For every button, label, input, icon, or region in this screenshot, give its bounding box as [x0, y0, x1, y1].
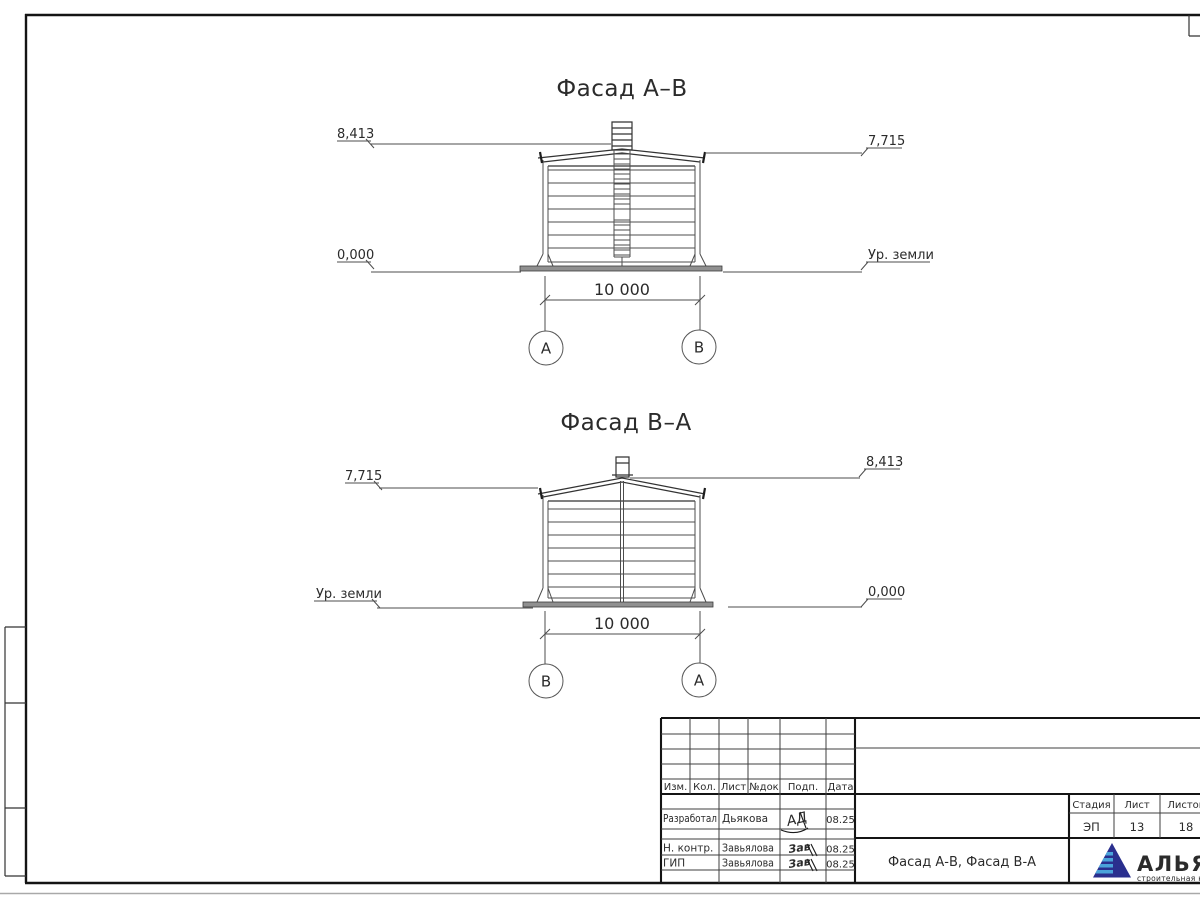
stage-value: ЭП: [1083, 820, 1100, 834]
sheets-label: Листов: [1167, 800, 1200, 811]
company-logo: АЛЬЯНС строительная компания: [1092, 843, 1200, 883]
drawing-sheet: Фасад А–В 8,413 7,715 0,000 Ур. земли 10…: [0, 0, 1200, 900]
axis-letter-right: В: [694, 339, 704, 357]
col-data: Дата: [828, 782, 854, 793]
corner-stamp-box: [1189, 15, 1200, 36]
roof-outline: [538, 478, 705, 501]
logo-subtitle: строительная компания: [1137, 874, 1200, 883]
row-name: Завьялова: [722, 843, 774, 855]
center-column: [621, 481, 624, 602]
logo-name: АЛЬЯНС: [1137, 852, 1200, 876]
logo-stripe: [1092, 858, 1113, 862]
axis-letter-right: А: [694, 672, 705, 690]
logo-stripe: [1092, 852, 1113, 856]
siding-lines: [548, 509, 695, 598]
ladder-cage: [612, 122, 632, 150]
facade-title: Фасад А–В: [556, 76, 687, 102]
axis-letter-left: А: [541, 340, 552, 358]
col-list: Лист: [721, 782, 747, 793]
dimension-value: 10 000: [594, 280, 650, 299]
row-role: Н. контр.: [663, 843, 713, 855]
ground-level-leader: [723, 262, 930, 272]
signature: Зав: [788, 840, 812, 856]
row-role: ГИП: [663, 858, 685, 870]
row-role: Разработал: [663, 813, 717, 825]
elevation-value-bottom-right: 0,000: [868, 585, 905, 600]
elevation-leader-bottom-left: [337, 260, 521, 272]
elevation-leader-top-right: [705, 148, 902, 156]
col-ndok: №док: [749, 782, 778, 793]
row-date: 08.25: [826, 845, 855, 856]
stage-label: Стадия: [1072, 800, 1110, 811]
dimension-value: 10 000: [594, 614, 650, 633]
logo-stripe: [1092, 870, 1113, 874]
page-frame: [0, 14, 1200, 894]
left-margin-boxes: [5, 627, 26, 876]
sheet-number: 13: [1130, 820, 1145, 834]
row-name: Завьялова: [722, 858, 774, 870]
row-name: Дьякова: [722, 813, 768, 825]
roof-outline: [538, 149, 705, 166]
ladder-rails: [614, 150, 630, 266]
elevation-value-top-right: 7,715: [868, 134, 905, 149]
col-kol: Кол.: [693, 782, 716, 793]
col-izm: Изм.: [664, 782, 688, 793]
axis-letter-left: В: [541, 673, 551, 691]
sheet-label: Лист: [1124, 800, 1150, 811]
document-title: Фасад А-В, Фасад В-А: [888, 855, 1036, 870]
elevation-value-top-left: 7,715: [345, 469, 382, 484]
elevation-leader-bottom-right: [728, 599, 902, 607]
facade-a-b: Фасад А–В 8,413 7,715 0,000 Ур. земли 10…: [337, 76, 934, 365]
facade-title: Фасад В–А: [560, 410, 691, 436]
ground-level-label: Ур. земли: [868, 248, 934, 263]
facade-b-a: Фасад В–А 7,715 8,413 Ур. земли 0,000 10…: [314, 410, 905, 698]
row-date: 08.25: [826, 815, 855, 826]
elevation-leader-top-left: [337, 139, 611, 148]
sheet-canvas: Фасад А–В 8,413 7,715 0,000 Ур. земли 10…: [0, 0, 1200, 900]
roof-chimney: [612, 457, 633, 477]
title-block: Изм. Кол. Лист №док Подп. Дата Разработа…: [661, 718, 1200, 883]
elevation-value-top-left: 8,413: [337, 127, 374, 142]
row-date: 08.25: [826, 860, 855, 871]
ladder-rungs: [614, 154, 630, 255]
logo-stripe: [1092, 864, 1113, 868]
elevation-value-bottom-left: 0,000: [337, 248, 374, 263]
elevation-value-top-right: 8,413: [866, 455, 903, 470]
signature: Зав: [788, 855, 812, 871]
col-podp: Подп.: [788, 782, 818, 793]
sheets-total: 18: [1179, 820, 1194, 834]
elevation-leader-top-right: [630, 469, 900, 478]
foundation-slab: [520, 266, 722, 271]
foundation-slab: [523, 602, 713, 607]
